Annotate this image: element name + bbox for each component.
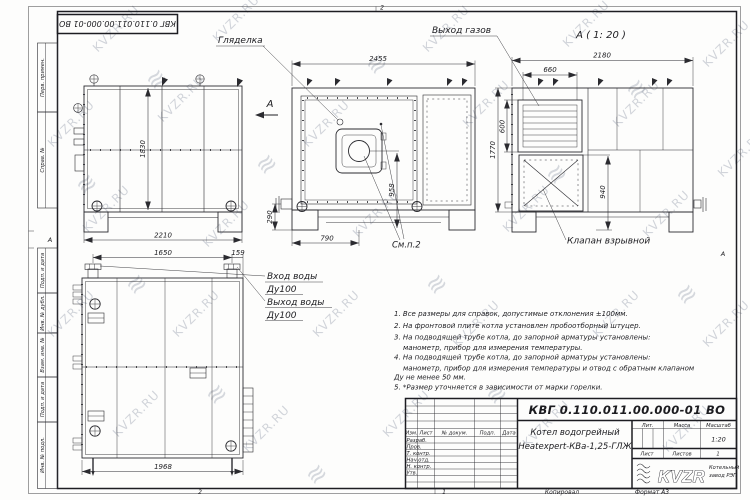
margin-field-perv-primen: Перв. примен. <box>40 58 46 97</box>
scale-label: Масштаб <box>706 423 731 429</box>
scale-value: 1:20 <box>711 436 726 444</box>
title-block: Изм. Лист № докум. Подп. Дата Разраб. Пр… <box>405 399 740 489</box>
side-leg <box>218 212 242 232</box>
svg-text:1830: 1830 <box>139 140 147 158</box>
dimension-nozzle-edge: 159 <box>231 249 245 257</box>
svg-text:660: 660 <box>543 66 557 74</box>
zone-letter-left: А <box>47 236 52 244</box>
rear-right-pipe <box>694 197 706 212</box>
svg-text:1770: 1770 <box>489 141 497 159</box>
inspection-plate <box>88 411 104 421</box>
safety-valve-icon <box>90 75 98 86</box>
svg-text:Клапан взрывной: Клапан взрывной <box>567 237 650 247</box>
note-line: Ду не менее 50 мм. <box>393 374 466 382</box>
vent-flag-icon <box>538 78 544 86</box>
sheets-label: Листов <box>671 452 691 458</box>
rear-leg <box>512 212 536 232</box>
dimension-rear-height: 1770 <box>489 88 512 212</box>
label-water-in: Вход воды <box>267 272 317 282</box>
row-razrab: Разраб. <box>407 438 427 444</box>
kvzr-logo-text: KVZR <box>658 468 705 486</box>
vent-flag-icon <box>462 78 468 86</box>
dimension-outlet-height: 600 <box>499 100 519 152</box>
svg-text:790: 790 <box>320 235 334 243</box>
fold-mark-top: 2 <box>380 5 384 12</box>
dimension-outlet-width: 660 <box>523 66 577 100</box>
front-body <box>292 88 475 210</box>
zone-letter-right: А <box>720 250 725 258</box>
vent-flag-icon <box>307 78 313 86</box>
valve-icon <box>226 441 236 451</box>
svg-text:2210: 2210 <box>154 232 172 240</box>
row-t-kontr: Т. контр. <box>407 451 431 457</box>
explosion-valve <box>519 155 583 211</box>
note-line: 3. На подводящей трубе котла, до запорно… <box>394 334 650 342</box>
product-name-line1: Котел водогрейный <box>530 428 620 438</box>
side-leg <box>84 212 108 232</box>
safety-valve-icon <box>196 75 204 86</box>
row-utv: Утв. <box>407 470 418 476</box>
view-a-title: А ( 1: 20 ) <box>575 30 626 41</box>
vent-flag-icon <box>447 78 453 86</box>
plan-left-stubs <box>73 285 82 450</box>
footer-format: Формат А3 <box>635 489 669 496</box>
margin-field-podp-data-2: Подп. и дата <box>40 382 46 417</box>
rear-leg <box>669 212 693 232</box>
lit-label: Лит. <box>641 423 654 429</box>
svg-text:1650: 1650 <box>154 249 172 257</box>
note-line: 4. На подводящей трубе котла, до запорно… <box>394 354 650 362</box>
svg-text:1968: 1968 <box>154 463 172 471</box>
view-side: 1830 2210 А <box>74 75 278 243</box>
dimension-plan-length: 1968 <box>82 460 243 475</box>
svg-text:290: 290 <box>266 210 274 224</box>
valve-icon <box>90 299 100 309</box>
dimension-burner-height: 958 <box>370 151 399 228</box>
col-list: Лист <box>418 430 433 436</box>
svg-text:958: 958 <box>388 183 396 197</box>
row-prov: Пров. <box>407 444 422 450</box>
sheet-label: Лист <box>639 452 654 458</box>
inspection-plate <box>88 313 104 323</box>
col-data: Дата <box>501 430 515 436</box>
label-water-in-dn: Ду100 <box>266 285 297 295</box>
vent-flag-icon <box>598 78 604 86</box>
technical-notes: 1. Все размеры для справок, допустимые о… <box>393 310 695 392</box>
drain-valve-icon <box>412 202 422 212</box>
valve-icon <box>90 426 100 436</box>
plan-right-bracket <box>243 388 253 452</box>
gas-outlet-grille <box>518 100 582 152</box>
note-line: 1. Все размеры для справок, допустимые о… <box>394 310 628 318</box>
vent-flag-icon <box>387 78 393 86</box>
svg-text:940: 940 <box>599 185 607 199</box>
view-front: Гляделка 2 <box>216 36 475 251</box>
svg-text:2455: 2455 <box>369 55 387 63</box>
burner-opening <box>349 141 370 162</box>
drawing-frame: КВГ 0.110.011.00.000-01 ВО 2 2 А А 1 Коп… <box>29 5 741 497</box>
dimension-side-height: 1830 <box>139 88 148 210</box>
product-name-line2: Heatexpert-КВа-1,25-ГЛЖ <box>518 442 632 452</box>
dimension-nozzle-span: 1650 159 <box>93 249 245 278</box>
label-gas-outlet: Выход газов <box>430 26 539 106</box>
margin-field-inv-podl: Инв. № подл. <box>40 437 46 473</box>
side-body <box>84 86 242 212</box>
margin-stamp-fields: Перв. примен. Справ. № Подп. и дата Инв.… <box>38 43 58 489</box>
mass-label: Масса <box>674 423 691 429</box>
vent-flag-icon <box>162 77 168 86</box>
svg-text:2180: 2180 <box>593 52 611 60</box>
margin-field-sprav-n: Справ. № <box>40 147 46 172</box>
vent-flag-icon <box>667 78 673 86</box>
dimension-valve-height: 940 <box>583 155 612 230</box>
sheets-value: 1 <box>716 452 719 458</box>
label-explosion-valve: Клапан взрывной <box>543 189 650 247</box>
col-podp: Подп. <box>480 430 496 436</box>
company-line2: завод РЭП <box>709 473 737 479</box>
col-izm: Изм. <box>405 430 417 436</box>
dimension-burner-offset: 790 <box>292 230 359 246</box>
svg-text:600: 600 <box>499 119 507 133</box>
footer-kopiroval: Копировал <box>545 489 579 496</box>
col-doc: № докум. <box>441 430 468 436</box>
note-line: 5. *Размер уточняется в зависимости от м… <box>394 384 602 392</box>
note-line: манометр, прибор для измерения температу… <box>403 344 582 352</box>
drawing-sheet: KVZR.RUKVZR.RUKVZR.RUKVZR.RUKVZR.RUKVZR.… <box>0 0 750 500</box>
side-left-nozzles <box>74 104 84 171</box>
row-nach-otd: Нач.отд. <box>407 457 430 463</box>
company-line1: Котельный <box>709 465 740 471</box>
water-inlet-nozzle <box>85 264 101 278</box>
title-doc-number: КВГ 0.110.011.00.000-01 ВО <box>529 403 726 417</box>
label-water-out-dn: Ду100 <box>266 311 297 321</box>
drain-valve-icon <box>226 201 236 211</box>
vent-flag-icon <box>553 78 559 86</box>
margin-field-vzam-inv: Взам. инв. № <box>40 337 46 372</box>
front-leg <box>449 210 475 230</box>
view-plan: 1650 159 1968 <box>73 249 332 476</box>
water-outlet-nozzle <box>224 264 240 278</box>
inspection-plate <box>190 368 206 378</box>
label-sight-glass: Гляделка <box>218 36 263 46</box>
stamp-doc-number: КВГ 0.110.011.00.000-01 ВО <box>59 19 176 28</box>
vent-flag-icon <box>335 78 341 86</box>
footer-num: 1 <box>442 489 446 496</box>
svg-text:См.п.2: См.п.2 <box>392 241 421 251</box>
front-leg <box>292 210 318 230</box>
note-line: 2. На фронтовой плите котла установлен п… <box>394 322 641 330</box>
section-arrow-a: А <box>255 99 278 118</box>
margin-field-podp-data-1: Подп. и дата <box>40 253 46 288</box>
top-stamp: КВГ 0.110.011.00.000-01 ВО <box>58 15 178 34</box>
view-rear-a: А ( 1: 20 ) <box>430 26 706 247</box>
margin-field-inv-dubl: Инв. № дубл. <box>40 295 46 331</box>
row-n-kontr: Н. контр. <box>407 464 432 470</box>
front-left-pipe <box>276 196 292 213</box>
water-labels: Вход воды Ду100 Выход воды Ду100 <box>100 266 332 321</box>
svg-text:Выход газов: Выход газов <box>432 26 491 36</box>
fold-mark-bottom: 2 <box>198 489 202 496</box>
label-water-out: Выход воды <box>267 298 324 308</box>
vent-flag-icon <box>652 78 658 86</box>
drain-valve-icon <box>92 201 102 211</box>
drawing-canvas: КВГ 0.110.011.00.000-01 ВО 2 2 А А 1 Коп… <box>0 0 750 500</box>
note-line: манометр, прибор для измерения температу… <box>403 365 695 373</box>
kvzr-logo: KVZR Котельный завод РЭП <box>637 464 740 486</box>
section-letter: А <box>266 99 274 110</box>
